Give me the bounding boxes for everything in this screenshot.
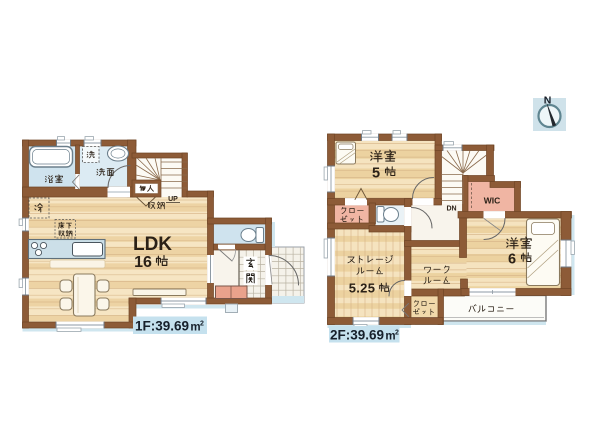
svg-text:2: 2 (395, 330, 399, 337)
svg-text:2F:39.69: 2F:39.69 (330, 328, 384, 343)
svg-text:1F:39.69: 1F:39.69 (135, 319, 189, 334)
svg-text:UP: UP (168, 196, 178, 203)
svg-text:WIC: WIC (484, 196, 501, 206)
svg-text:6: 6 (508, 252, 516, 268)
svg-text:DN: DN (446, 206, 456, 213)
svg-text:16: 16 (134, 254, 152, 271)
svg-text:5: 5 (372, 166, 380, 182)
svg-text:N: N (544, 95, 552, 107)
svg-text:2: 2 (200, 321, 204, 328)
svg-text:LDK: LDK (133, 234, 172, 255)
svg-text:5.25: 5.25 (349, 281, 376, 296)
